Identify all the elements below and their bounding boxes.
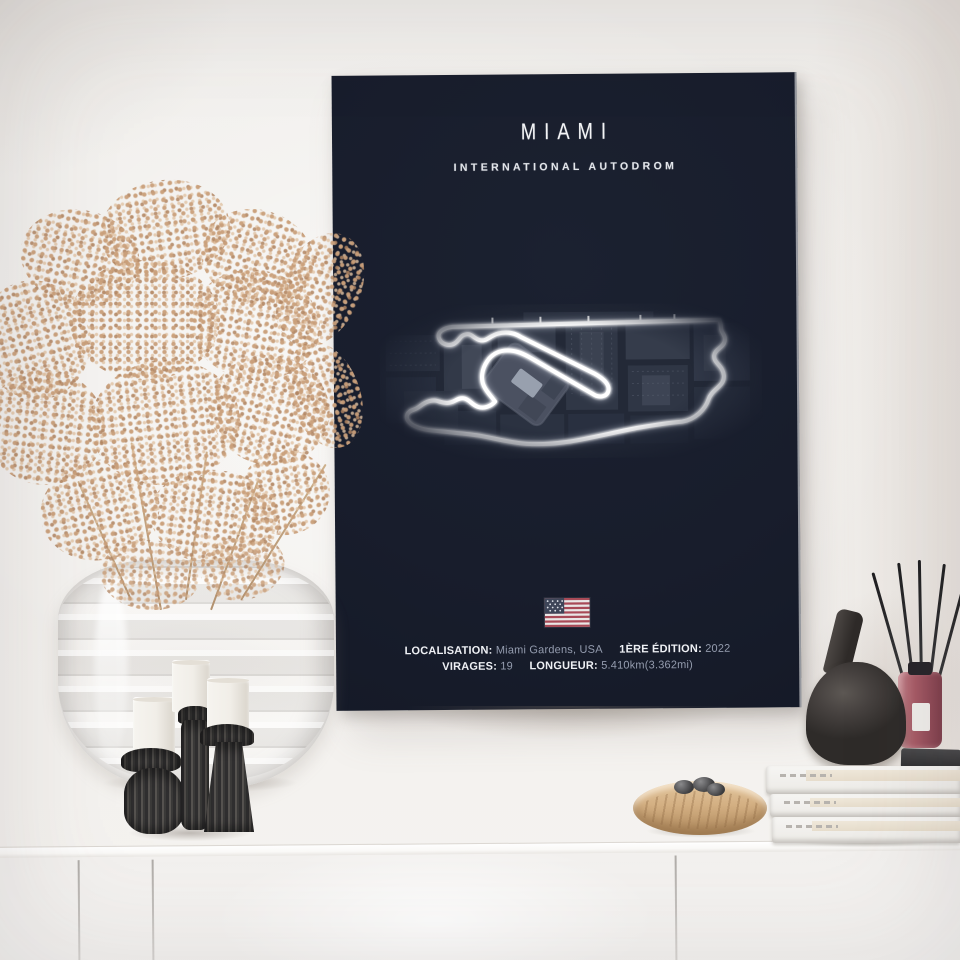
photo-vignette	[0, 0, 960, 960]
product-photo-scene: MIAMI INTERNATIONAL AUTODROM	[0, 0, 960, 960]
